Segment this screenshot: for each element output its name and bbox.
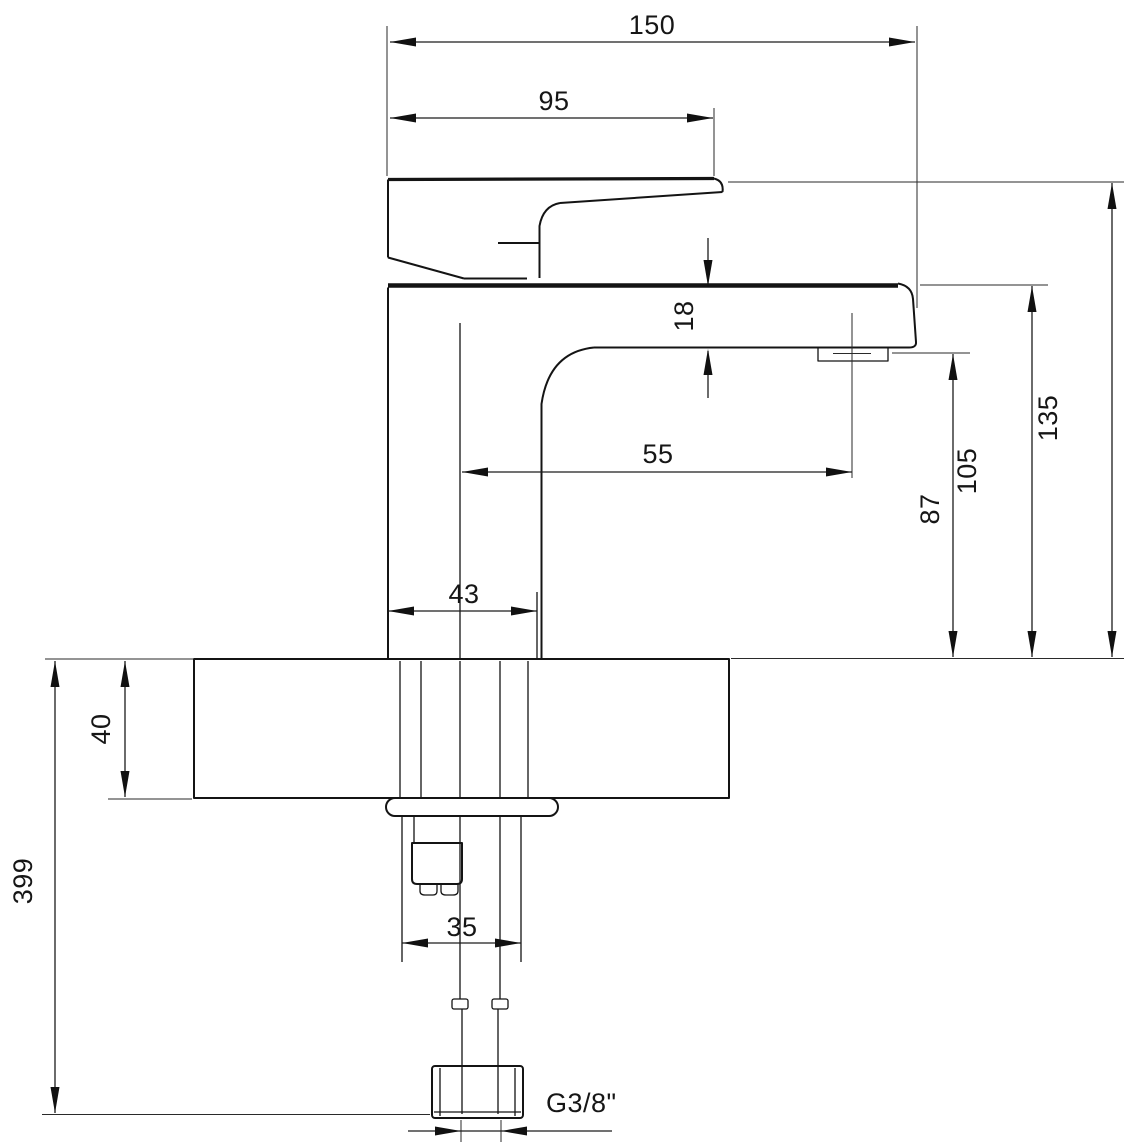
dim-handle-length-label: 95 xyxy=(538,86,569,116)
dim-overall-length: 150 xyxy=(390,10,915,47)
supply-pipe-fitting xyxy=(432,999,523,1118)
dim-overall-height-label: 135 xyxy=(1033,395,1063,442)
dim-body-width: 43 xyxy=(388,579,537,616)
dim-aerator-offset-label: 55 xyxy=(642,439,673,469)
dim-overall-depth: 399 xyxy=(8,661,60,1113)
dim-handle-length: 95 xyxy=(390,86,713,123)
mounting-deck xyxy=(194,659,729,798)
faucet-dimension-drawing: 150 95 18 55 43 xyxy=(0,0,1128,1148)
flange-washer xyxy=(386,798,558,816)
dim-overall-depth-label: 399 xyxy=(8,858,38,905)
dim-body-width-label: 43 xyxy=(448,579,479,609)
dim-shank-width-label: 35 xyxy=(446,912,477,942)
dim-spout-end-height: 18 xyxy=(669,238,713,398)
dim-aerator-height-label: 87 xyxy=(915,493,945,524)
aerator-detail xyxy=(818,313,888,478)
dim-deck-thickness-label: 40 xyxy=(86,713,116,744)
extension-lines xyxy=(42,26,1124,1142)
dim-aerator-offset: 55 xyxy=(462,439,852,477)
dim-spout-top-height-label: 105 xyxy=(952,448,982,495)
dim-spout-top-height: 105 xyxy=(952,286,1037,657)
handle-lever xyxy=(388,179,723,279)
faucet-outline xyxy=(194,179,916,1119)
dim-overall-height: 135 xyxy=(1033,183,1117,657)
dim-thread-size-label: G3/8" xyxy=(546,1088,617,1118)
dim-shank-width: 35 xyxy=(402,912,521,948)
dim-deck-thickness: 40 xyxy=(86,661,130,797)
technical-drawing-page: 150 95 18 55 43 xyxy=(0,0,1128,1148)
dim-overall-length-label: 150 xyxy=(629,10,676,40)
dim-spout-end-height-label: 18 xyxy=(669,300,699,331)
dim-aerator-height: 87 xyxy=(915,354,958,657)
shank-and-nut xyxy=(402,816,521,999)
